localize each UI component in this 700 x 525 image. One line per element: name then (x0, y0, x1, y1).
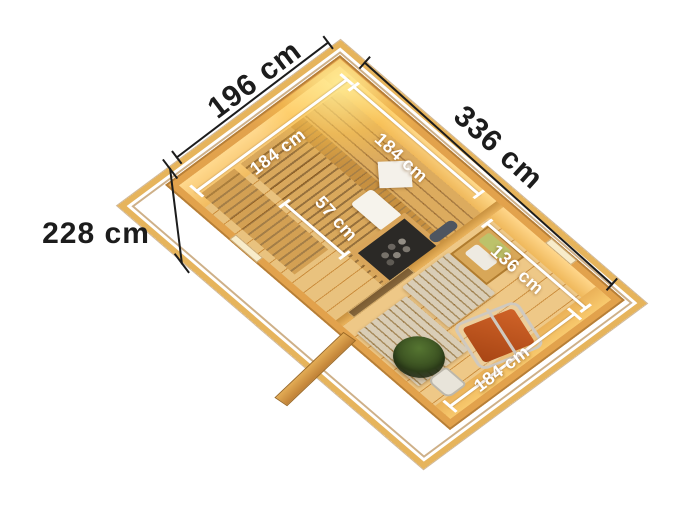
dimension-label-height: 228 cm (42, 217, 150, 251)
stove-stones (397, 237, 408, 246)
sauna-floorplan-render: 196 cm 336 cm 228 cm 184 cm 184 cm 57 cm… (0, 0, 700, 525)
